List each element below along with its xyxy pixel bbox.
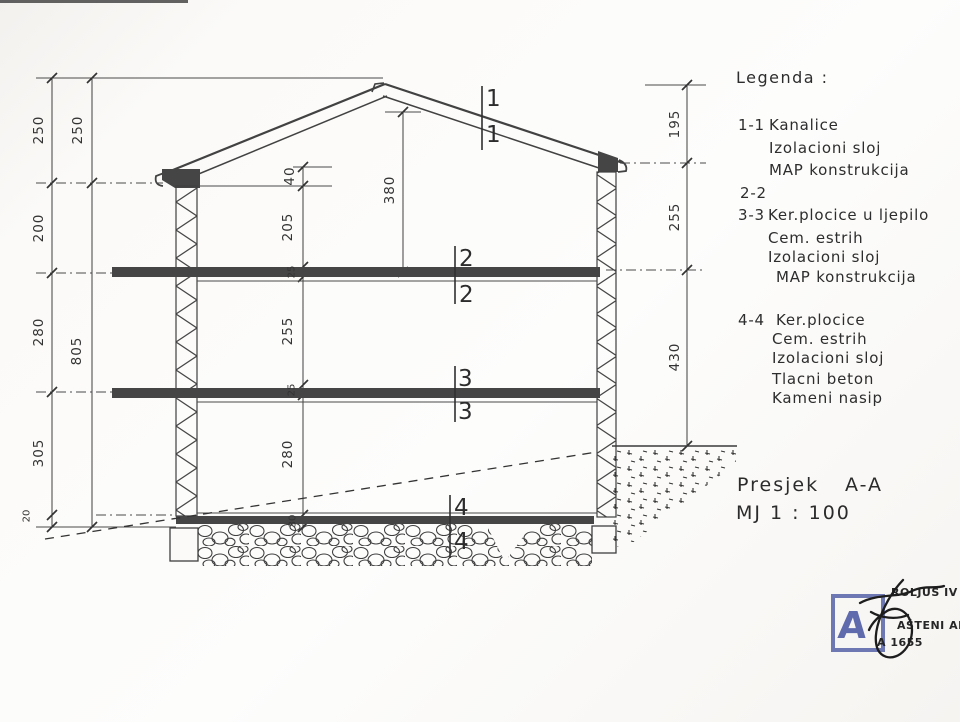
left-wall: [176, 186, 197, 516]
scan-edge-artifact: [0, 0, 188, 3]
dim-int-25b: 25: [287, 384, 298, 397]
dim-left-305: 305: [31, 439, 47, 468]
soil-hatch: [613, 446, 736, 547]
section-mark-4-top: 4: [454, 497, 469, 520]
legend-line: Izolacioni sloj: [769, 139, 881, 157]
legend-line: Kameni nasip: [772, 389, 883, 407]
section-mark-2-bottom: 2: [459, 284, 474, 307]
dim-left-200: 200: [31, 214, 47, 243]
legend-key-1-1: 1-1: [738, 116, 765, 134]
section-mark-1-top: 1: [486, 88, 501, 111]
section-mark-3-top: 3: [458, 368, 473, 391]
stamp-number: A 1655: [877, 636, 923, 649]
stone-fill: [197, 524, 592, 566]
section-mark-3-bottom: 3: [458, 401, 473, 424]
section-mark-1-bottom: 1: [486, 124, 501, 147]
section-label: A-A: [845, 474, 883, 496]
dim-left-250b: 250: [70, 116, 86, 145]
dim-ridge-380: 380: [382, 176, 398, 205]
left-footing: [170, 528, 198, 561]
walls: [176, 172, 616, 517]
stamp-letter: A: [837, 607, 868, 644]
section-mark-2-top: 2: [459, 248, 474, 271]
legend-line: Ker.plocice: [776, 311, 865, 329]
first-floor-slab: [112, 388, 600, 398]
stamp-name: ROLJUS IV: [891, 586, 958, 599]
dim-int-280: 280: [280, 440, 296, 469]
stamp-license: AŠTENI AR: [897, 619, 960, 632]
legend-line: MAP konstrukcija: [769, 161, 909, 179]
drawing-title: Presjek: [737, 474, 819, 496]
dimension-ticks: [47, 73, 692, 532]
dim-int-30: 30: [288, 515, 299, 528]
legend-line: MAP konstrukcija: [776, 268, 916, 286]
legend-line: Cem. estrih: [768, 229, 863, 247]
dim-right-430: 430: [667, 343, 683, 372]
section-cut-lines: [450, 86, 482, 558]
legend-line: Ker.plocice u ljepilo: [768, 206, 929, 224]
legend-line: Izolacioni sloj: [772, 349, 884, 367]
dim-right-195: 195: [667, 110, 683, 139]
dim-left-250a: 250: [31, 116, 47, 145]
dim-int-205: 205: [280, 213, 296, 242]
legend-key-3-3: 3-3: [738, 206, 765, 224]
scanned-drawing-page: { "legend": { "title": "Legenda :", "ite…: [0, 0, 960, 722]
dim-int-255: 255: [280, 317, 296, 346]
legend-line: Tlacni beton: [772, 370, 874, 388]
section-mark-4-bottom: 4: [454, 531, 469, 554]
dim-right-255: 255: [667, 203, 683, 232]
dim-left-805: 805: [69, 337, 85, 366]
dim-left-280: 280: [31, 318, 47, 347]
dim-int-25a: 25: [287, 266, 298, 279]
legend-key-2-2: 2-2: [740, 184, 767, 202]
right-footing: [592, 526, 616, 553]
ground-slab: [176, 516, 594, 524]
legend-line: Cem. estrih: [772, 330, 867, 348]
legend-line: Izolacioni sloj: [768, 248, 880, 266]
legend-title: Legenda :: [736, 68, 829, 87]
second-floor-slab: [112, 267, 600, 277]
drawing-scale: MJ 1 : 100: [736, 502, 851, 524]
dimension-lines: [52, 78, 687, 527]
roof: [156, 83, 627, 186]
dim-left-20: 20: [22, 510, 33, 523]
legend-line: Kanalice: [769, 116, 839, 134]
legend-key-4-4: 4-4: [738, 311, 765, 329]
dim-int-40: 40: [282, 166, 298, 185]
